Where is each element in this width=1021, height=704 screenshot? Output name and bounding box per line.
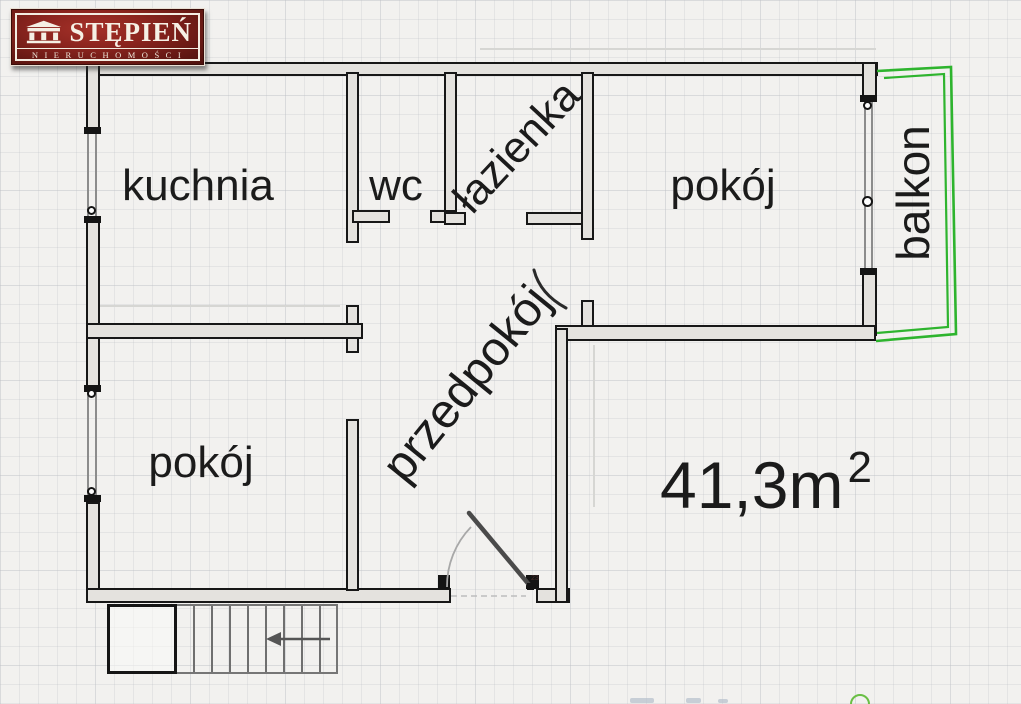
stair-step-line [211, 606, 213, 672]
wall-room-right-bottom [555, 325, 876, 341]
wall-kitchen-bottom [86, 323, 363, 339]
stair-step-line [247, 606, 249, 672]
window-knob-icon [87, 206, 96, 215]
scan-artifact-line [480, 48, 876, 50]
room-label-balcony: balkon [890, 125, 936, 261]
room-label-room-left: pokój [148, 441, 253, 485]
temple-icon [25, 16, 62, 48]
window-knob-icon [863, 101, 872, 110]
stair-step-line [193, 606, 195, 672]
wall-hallway-right [555, 328, 568, 603]
stair-step-line [283, 606, 285, 672]
agency-logo-brand: STĘPIEŃ [69, 19, 192, 46]
entrance-door-number: 23 [531, 575, 539, 582]
scan-artifact-text [718, 699, 728, 703]
stair-step-line [265, 606, 267, 672]
room-label-kitchen: kuchnia [122, 164, 274, 208]
wall-bottom-west [86, 588, 451, 603]
stair-step-line [229, 606, 231, 672]
door-handle-icon [862, 196, 873, 207]
scan-artifact-line [100, 305, 340, 307]
balcony-door-pane-line [864, 102, 866, 270]
window-knob-icon [87, 389, 96, 398]
scan-artifact-line [593, 345, 595, 507]
window-knob-icon [87, 487, 96, 496]
window-pane-line [87, 134, 89, 216]
agency-logo-subtitle: NIERUCHOMOŚCI [17, 48, 198, 61]
floor-plan-canvas: kuchnia wc łazienka pokój przedpokój pok… [0, 0, 1021, 704]
scan-artifact-text [686, 698, 701, 703]
agency-logo-frame: STĘPIEŃ NIERUCHOMOŚCI [15, 13, 200, 61]
wall-bathroom-bottom-right [526, 212, 588, 225]
window-pane-line [95, 392, 97, 502]
window-cap [860, 268, 877, 275]
window-pane-line [95, 134, 97, 216]
door-jamb [438, 575, 450, 589]
total-area: 41,3m2 [660, 452, 868, 518]
total-area-superscript: 2 [847, 443, 871, 492]
stair-step-line [319, 606, 321, 672]
stairs-landing [107, 604, 177, 674]
wall-room-left-right [346, 419, 359, 591]
room-label-room-right: pokój [670, 164, 775, 208]
window-cap [84, 216, 101, 223]
wall-bathroom-bottom-left [444, 212, 466, 225]
agency-logo: STĘPIEŃ NIERUCHOMOŚCI [10, 8, 205, 66]
stairs [177, 604, 338, 674]
window-cap [84, 495, 101, 502]
window-pane-line [87, 392, 89, 502]
wall-wc-bottom-left [352, 210, 390, 223]
stair-step-line [301, 606, 303, 672]
scan-artifact-text [630, 698, 654, 703]
balcony-door-pane-line [871, 102, 873, 270]
wall-left-upper [86, 62, 100, 134]
wall-left-middle [86, 216, 100, 392]
room-label-wc: wc [369, 164, 423, 208]
window-cap [84, 127, 101, 134]
total-area-value: 41,3m [660, 448, 843, 522]
